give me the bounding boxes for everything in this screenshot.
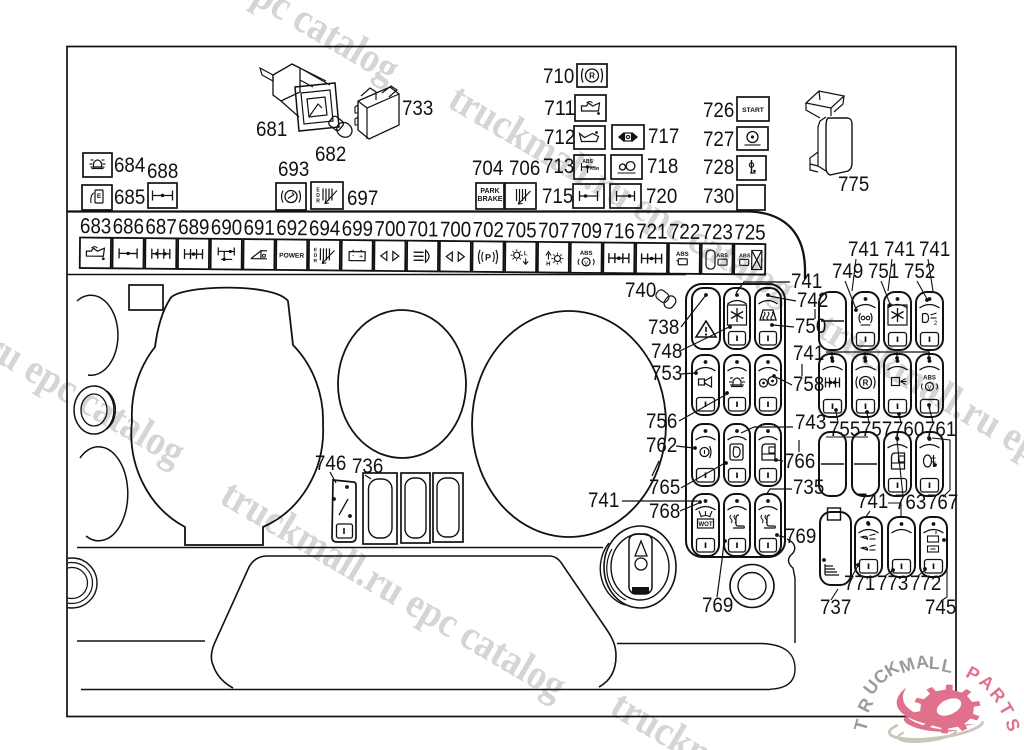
svg-text:V: V [584,261,588,267]
svg-text:752: 752 [904,259,935,283]
svg-text:E: E [97,193,102,200]
svg-text:727: 727 [703,127,734,151]
svg-text:738: 738 [648,315,679,339]
svg-text:725: 725 [734,220,766,244]
svg-text:728: 728 [703,155,734,179]
svg-text:ABS: ABS [923,376,936,382]
svg-text:702: 702 [472,218,504,242]
svg-text:681: 681 [256,117,287,141]
svg-text:H: H [546,261,550,267]
svg-text:S: S [1001,716,1024,734]
svg-text:765: 765 [649,475,680,499]
svg-text:686: 686 [113,214,145,238]
svg-text:694: 694 [309,216,341,240]
svg-text:PARK: PARK [480,188,499,195]
svg-text:733: 733 [402,96,433,120]
svg-text:+: + [359,254,363,261]
svg-text:690: 690 [211,215,243,239]
svg-text:749: 749 [832,259,863,283]
svg-text:741: 741 [884,237,915,261]
svg-text:769: 769 [785,524,816,548]
svg-text:712: 712 [544,125,575,149]
svg-text:751: 751 [868,259,899,283]
svg-text:715: 715 [542,184,573,208]
svg-text:692: 692 [276,216,308,240]
svg-text:710: 710 [543,64,574,88]
svg-text:709: 709 [571,219,603,243]
svg-text:762: 762 [646,433,677,457]
svg-text:746: 746 [315,451,346,475]
svg-text:697: 697 [347,186,378,210]
svg-text:775: 775 [838,172,869,196]
svg-text:683: 683 [80,214,112,238]
svg-text:L: L [940,655,955,677]
svg-text:T: T [850,717,872,733]
svg-text:761: 761 [925,417,956,441]
svg-text:718: 718 [647,154,678,178]
svg-text:700: 700 [374,217,406,241]
svg-text:763: 763 [895,490,926,514]
svg-text:2: 2 [934,321,938,327]
svg-text:R: R [316,199,320,205]
svg-text:693: 693 [278,157,309,181]
svg-text:722: 722 [669,220,701,244]
svg-text:737: 737 [820,595,851,619]
svg-text:689: 689 [178,215,210,239]
svg-text:740: 740 [625,278,656,302]
svg-text:R: R [589,72,595,81]
svg-text:ASR: ASR [590,166,600,171]
svg-text:POWER: POWER [279,252,304,259]
svg-text:723: 723 [702,220,734,244]
svg-text:ABS: ABS [676,252,689,258]
svg-text:ABS: ABS [739,253,751,259]
svg-text:741: 741 [848,237,879,261]
svg-text:745: 745 [925,595,956,619]
svg-text:BRAKE: BRAKE [478,196,503,203]
svg-text:706: 706 [509,156,540,180]
svg-text:721: 721 [636,219,668,243]
svg-text:717: 717 [648,124,679,148]
svg-text:P: P [485,252,491,262]
svg-text:736: 736 [352,454,383,478]
svg-text:691: 691 [243,216,275,240]
svg-text:741: 741 [588,488,619,512]
svg-text:766: 766 [784,449,815,473]
svg-text:767: 767 [927,490,958,514]
svg-text:ABS: ABS [582,159,593,165]
svg-text:701: 701 [407,217,439,241]
svg-text:753: 753 [651,361,682,385]
svg-text:L: L [524,251,528,257]
svg-text:WOT: WOT [699,522,713,528]
svg-text:START: START [742,107,765,114]
svg-text:truckmall.ru epc catalog: truckmall.ru epc catalog [213,471,574,710]
svg-text:R: R [863,379,869,388]
svg-text:688: 688 [147,159,178,183]
svg-text:773: 773 [877,571,908,595]
svg-text:682: 682 [315,142,346,166]
svg-text:687: 687 [145,215,177,239]
svg-text:730: 730 [703,184,734,208]
svg-text:711: 711 [544,96,575,120]
svg-text:684: 684 [114,153,145,177]
svg-text:704: 704 [472,156,503,180]
svg-text:756: 756 [646,409,677,433]
svg-text:R: R [314,258,318,264]
svg-text:741: 741 [919,237,950,261]
svg-text:735: 735 [793,475,824,499]
svg-text:713: 713 [543,154,574,178]
svg-text:772: 772 [910,571,941,595]
svg-text:-: - [352,253,355,260]
svg-text:758: 758 [793,372,824,396]
svg-text:771: 771 [844,571,875,595]
svg-text:truckmall.ru epc catalog: truckmall.ru epc catalog [0,237,193,476]
svg-text:ABS: ABS [580,251,593,257]
svg-text:768: 768 [649,499,680,523]
svg-text:700: 700 [440,217,472,241]
svg-text:748: 748 [651,339,682,363]
svg-text:726: 726 [703,98,734,122]
svg-text:707: 707 [538,218,570,242]
svg-text:741: 741 [857,489,888,513]
svg-text:ABS: ABS [716,253,728,259]
svg-text:743: 743 [795,410,826,434]
svg-text:V: V [927,386,931,392]
svg-text:742: 742 [797,288,828,312]
svg-text:716: 716 [603,219,635,243]
svg-text:705: 705 [505,218,537,242]
svg-text:L: L [928,653,940,674]
svg-text:741: 741 [793,341,824,365]
svg-text:685: 685 [114,185,145,209]
svg-text:699: 699 [342,217,374,241]
svg-text:720: 720 [646,184,677,208]
svg-text:760: 760 [893,417,924,441]
svg-text:750: 750 [795,314,826,338]
